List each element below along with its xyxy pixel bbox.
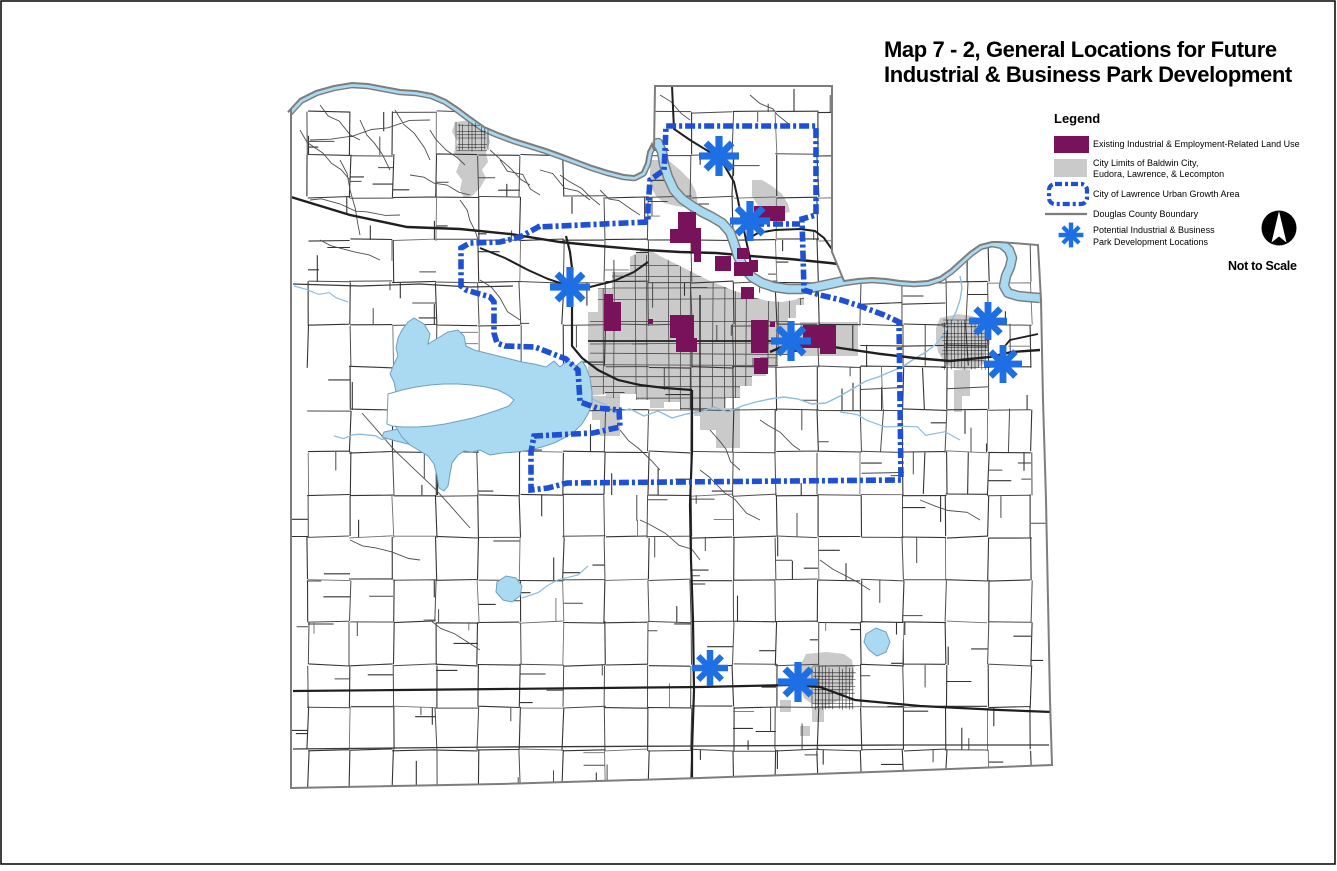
- svg-text:Not to Scale: Not to Scale: [1228, 259, 1297, 273]
- svg-text:City Limits of Baldwin City,: City Limits of Baldwin City,: [1093, 158, 1198, 168]
- svg-text:Eudora, Lawrence, & Lecompton: Eudora, Lawrence, & Lecompton: [1093, 169, 1224, 179]
- svg-text:City of Lawrence Urban Growth: City of Lawrence Urban Growth Area: [1093, 189, 1240, 199]
- svg-text:Map 7 - 2, General Locations f: Map 7 - 2, General Locations for Future: [884, 37, 1277, 62]
- svg-text:Legend: Legend: [1054, 111, 1100, 126]
- svg-text:Existing Industrial & Employme: Existing Industrial & Employment-Related…: [1093, 139, 1300, 149]
- svg-text:Park Development Locations: Park Development Locations: [1093, 237, 1209, 247]
- svg-text:Potential Industrial & Busines: Potential Industrial & Business: [1093, 225, 1215, 235]
- svg-text:Industrial & Business Park Dev: Industrial & Business Park Development: [884, 62, 1293, 87]
- svg-text:Douglas County Boundary: Douglas County Boundary: [1093, 209, 1199, 219]
